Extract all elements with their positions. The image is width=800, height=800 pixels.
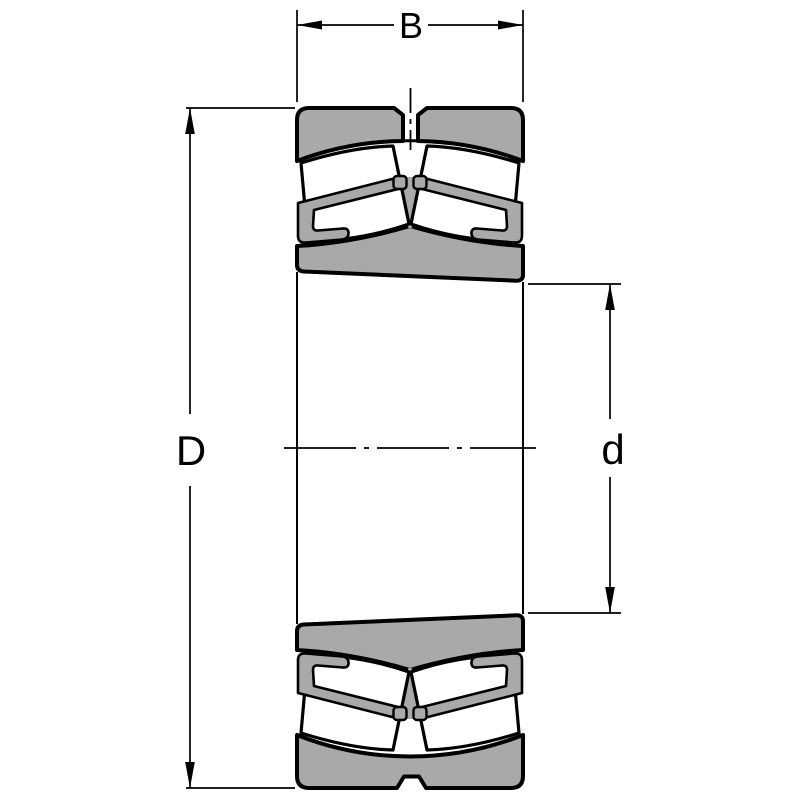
- d-bore-arrowhead-down-icon: [605, 587, 615, 613]
- outer-diameter-label: D: [176, 427, 206, 474]
- bore-diameter-label: d: [601, 426, 624, 473]
- bearing-technical-drawing: B D d: [0, 0, 800, 800]
- dimension-d: d: [528, 284, 625, 613]
- d-outer-arrowhead-down-icon: [185, 762, 195, 788]
- width-label: B: [399, 5, 423, 46]
- dimension-B: B: [297, 5, 523, 102]
- b-arrowhead-left-icon: [297, 21, 322, 30]
- d-outer-arrowhead-up-icon: [185, 108, 195, 134]
- dimension-D: D: [176, 108, 295, 788]
- cage-tab-top-left: [394, 176, 407, 189]
- outer-ring-bottom: [297, 735, 523, 788]
- cage-tab-bottom-left: [394, 707, 407, 720]
- b-arrowhead-right-icon: [498, 21, 523, 30]
- cage-tab-bottom-right: [414, 707, 427, 720]
- outer-ring-bottom-with-notch: [297, 735, 523, 788]
- bearing-cross-section-svg: B D d: [0, 0, 800, 800]
- d-bore-arrowhead-up-icon: [605, 284, 615, 310]
- cage-tab-top-right: [414, 176, 427, 189]
